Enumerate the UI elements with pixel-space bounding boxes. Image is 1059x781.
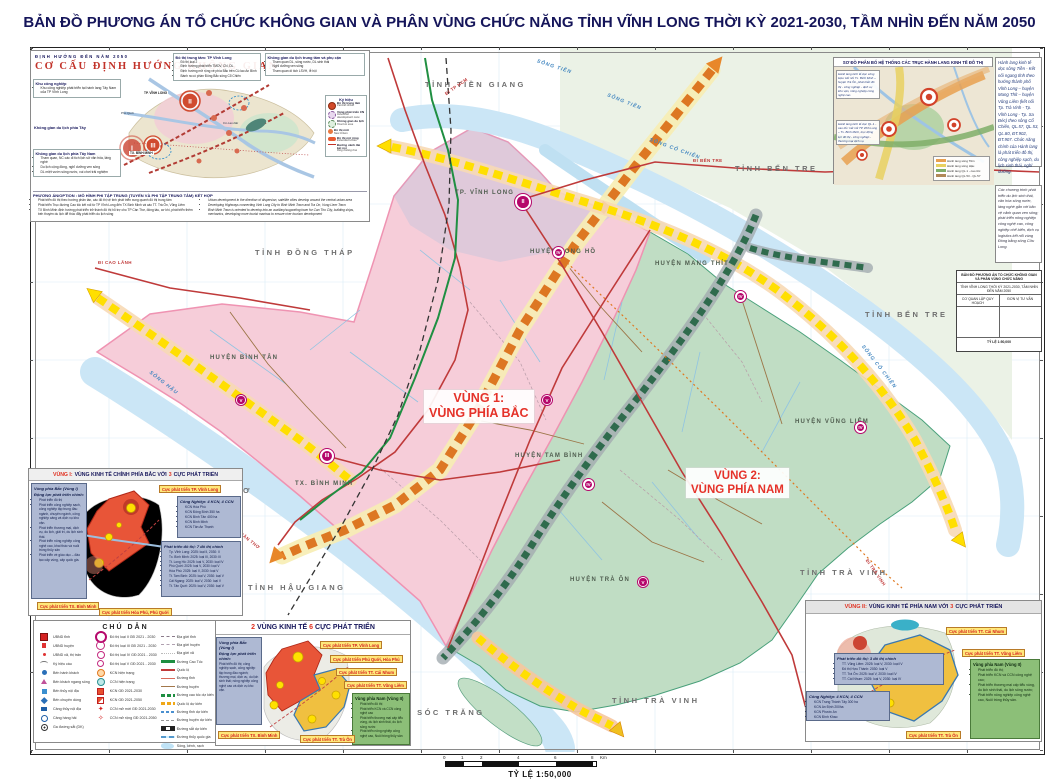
bullet: Binh Minh Town is oriented to develop in…	[208, 208, 367, 217]
legend-symbol-icon	[37, 706, 51, 713]
corridor-note-2: Hành lang kinh tế dọc QL.1 - cao tốc: kế…	[836, 120, 880, 145]
legend-symbol-icon	[94, 715, 108, 722]
legend-item: Địa giới huyện	[161, 641, 214, 648]
legend-item: CCN hiện trạng	[94, 678, 157, 685]
legend-item: Quốc lộ	[161, 667, 214, 674]
legend-item: Đường tỉnh	[161, 675, 214, 682]
scale-label: TỶ LỆ 1:50,000	[440, 770, 640, 779]
legend-item: UBND tỉnh	[37, 633, 90, 640]
two-region-left-box: Vùng phía Bắc (Vùng I) Động lực phát tri…	[216, 637, 262, 725]
region2-inset: VÙNG II: VÙNG KINH TẾ PHÍA NAM VỚI 3 CỰC…	[805, 600, 1042, 742]
title-block-agency: CƠ QUAN LẬP QUY HOẠCH	[957, 295, 1000, 306]
legend-symbol-icon	[161, 650, 175, 657]
bullet: Phát triển đô thị theo hướng phân tán, c…	[38, 198, 197, 202]
ring-link-note: Đường vành đai kết nốiRing linking line	[328, 144, 365, 153]
corridor-inset: SƠ ĐỒ PHÂN BỐ HỆ THỐNG CÁC TRỤC HÀNH LAN…	[833, 57, 993, 184]
title-block-line2: TỈNH VĨNH LONG THỜI KỲ 2021-2030, TẦM NH…	[957, 283, 1041, 295]
chip-tp-vinh-long: Cực phát triển TP. Vĩnh Long	[320, 641, 382, 649]
scale-ticks: 0 1 2 4 6 8 Km	[440, 755, 640, 761]
bullet: Nghỉ dưỡng ven sông	[273, 64, 363, 68]
bullet: KCN Tân An Thạnh	[185, 525, 238, 529]
south-bullets: Phát triển đô thịPhát triển KCN và CCN c…	[355, 702, 407, 738]
legend-symbol-icon	[94, 642, 108, 649]
district-label-binh-tan: HUYỆN BÌNH TÂN	[210, 355, 278, 361]
ky-hieu-item: Không gian du lịchTourism area	[328, 120, 365, 128]
bullet: TX Bình Minh định hướng phát triển trở t…	[38, 208, 197, 217]
legend-item: KCN hiện trạng	[94, 669, 157, 676]
legend-symbol-icon	[94, 633, 108, 640]
legend-item: Đường huyện	[161, 683, 214, 690]
legend-box: CHÚ DẪN UBND tỉnhUBND huyệnUBND xã, thị …	[33, 620, 218, 743]
legend-symbol-icon	[161, 709, 175, 716]
bullet: KCN Phước An	[814, 710, 887, 714]
corridor-legend-item: Hành lang QL.1 - cao tốc	[936, 169, 988, 173]
region1-minimap	[79, 485, 169, 607]
legend-item: Bến khách ngang sông	[37, 678, 90, 685]
legend-symbol-icon	[37, 688, 51, 695]
legend-symbol-icon	[161, 725, 175, 732]
legend-symbol-icon	[94, 678, 108, 685]
bullet: Phát triển đô thị;	[978, 668, 1037, 673]
bullet: Phát triển Trục đường Cao tốc kết nối từ…	[38, 203, 197, 207]
south-bullets: Phát triển đô thị;Phát triển KCN và CCN …	[973, 668, 1037, 703]
option-section: PHƯƠNG ÁN/OPTION : MÔ HÌNH PHI TẬP TRUNG…	[33, 191, 367, 217]
program-note: Các chương trình phát triển du lịch sinh…	[995, 185, 1042, 263]
legend-symbol-icon	[94, 706, 108, 713]
chip-vung-liem: Cực phát triển TT. Vũng Liêm	[344, 681, 407, 689]
legend-item: UBND xã, thị trấn	[37, 651, 90, 658]
legend-item: Đô thị loại IV GĐ 2021 - 2030	[94, 651, 157, 658]
region1-drivers-box: Vùng phía Bắc (Vùng I) Động lực phát tri…	[31, 483, 87, 599]
bullet: Phát triển đô thị	[360, 702, 407, 706]
corridor-swatch-icon	[936, 174, 946, 177]
ky-hieu-item: Vùng phát triển CNIndustrial development…	[328, 111, 365, 120]
legend-item: KCN GĐ 2021-2030	[94, 688, 157, 695]
corridor-swatch-icon	[936, 169, 946, 172]
legend-symbol-icon	[161, 667, 175, 674]
bullet: Tx. Bình Minh: 2025: loại III, 2030: III	[169, 555, 238, 559]
bullet: Tt. Tân Quới: 2025: loại V, 2030: loại V	[169, 584, 238, 588]
urban-marker-iv-3: IV	[854, 421, 867, 434]
bullet: DL miệt vườn sông nước, vui chơi trải ng…	[41, 170, 119, 174]
bullet: KCN Trung Thành Tây 300 ha	[814, 700, 887, 704]
chip-binh-minh: Cực phát triển TX. Bình Minh	[37, 602, 99, 610]
legend-symbol-icon	[328, 129, 333, 134]
legend-symbol-icon	[161, 683, 175, 690]
chip-cai-nhum2: Cực phát triển TT. Cái Nhum	[946, 627, 1007, 635]
minimap-numeral-iii: III	[150, 144, 155, 150]
title-block-consultant: ĐƠN VỊ TƯ VẤN	[1000, 295, 1042, 306]
legend-item: Cảng hàng hải	[37, 715, 90, 722]
bullet: Phát triển công nghiệp sạch, công nghiệp…	[39, 503, 84, 525]
road-label-ben-tre: ĐI BẾN TRE	[693, 158, 723, 163]
title-block: BẢN ĐỒ PHƯƠNG ÁN TỔ CHỨC KHÔNG GIAN VÀ P…	[956, 270, 1042, 352]
legend-symbol-icon	[161, 658, 175, 665]
ring-line-icon	[328, 144, 336, 145]
bullet: Phát triển thương mại cấp tiểu vùng, du …	[978, 683, 1037, 692]
option-vn-bullets: Phát triển đô thị theo hướng phân tán, c…	[33, 198, 197, 217]
legend-symbol-icon	[94, 669, 108, 676]
legend-symbol-icon	[37, 660, 51, 667]
corridor-legend-item: Hành lang QL.53 - QL.57	[936, 174, 988, 178]
legend-symbol-icon	[161, 692, 175, 699]
region2-inset-title: VÙNG II: VÙNG KINH TẾ PHÍA NAM VỚI 3 CỰC…	[806, 601, 1041, 614]
legend-symbol-icon	[161, 742, 175, 749]
option-en-bullets: Urban development in the direction of di…	[203, 198, 367, 217]
ky-hieu-legend: Ký hiệu Đô thị trung tâmCentral Urban Vù…	[325, 95, 367, 157]
urban-marker-iv-1: IV	[552, 246, 565, 259]
legend-item: Đường sắt dự kiến	[161, 725, 214, 732]
bullet: KCN Bình Tân 400 ha	[185, 515, 238, 519]
urban-marker-iii: III	[319, 448, 335, 464]
urban-marker-v-2: V	[235, 394, 247, 406]
legend-symbol-icon	[37, 651, 51, 658]
bullet: KCN Đình Khao	[814, 715, 887, 719]
bullet: Hòa Phú: 2025: loại V, 2030: loại V	[169, 569, 238, 573]
bullet: Phát triển đô thị	[39, 498, 84, 502]
legend-item: Đô thị loại II GĐ 2021 - 2030	[94, 633, 157, 640]
chip-hoa-phu: Cực phát triển Hòa Phú, Phú Quới	[99, 608, 172, 616]
urban-marker-v-1: V	[541, 394, 553, 406]
corridor-legend-item: Hành lang sông Tiền	[936, 159, 988, 163]
title-block-scale: TỶ LỆ 1:50,000	[957, 338, 1041, 345]
chip-binh-minh2: Cực phát triển TX. Bình Minh	[218, 731, 280, 739]
map-sheet: BẢN ĐỒ PHƯƠNG ÁN TỔ CHỨC KHÔNG GIAN VÀ P…	[0, 0, 1059, 781]
bullet: Đô thị Hựu Thành: 2030: loại V	[842, 667, 941, 671]
section-bullets: Tham quan DL, sông nước, DL sinh tháiNgh…	[268, 60, 363, 74]
district-label-binh-minh: TX. BÌNH MINH	[295, 481, 353, 487]
urban-marker-ii: II	[514, 193, 532, 211]
bullet: TT. Trà Ôn: 2025: loại V, 2030: loại IV	[842, 672, 941, 676]
section-bullets: Đô thị loại 2Định hướng phát triển TMDV,…	[176, 60, 259, 79]
bullet: Phát triển KCN và CCN công nghệ cao;	[978, 673, 1037, 682]
bullet: Phát triển nông nghiệp công nghệ cao, Nu…	[978, 693, 1037, 702]
legend-symbol-icon	[37, 669, 51, 676]
bullet: Tham quan di tích LSVH, lễ hội	[273, 69, 363, 73]
song-tien-corridor-note: Hành lang kinh tế dọc sông Tiền - Kết nố…	[995, 57, 1042, 167]
legend-item: Đô thị loại V GĐ 2021 - 2030	[94, 660, 157, 667]
legend-symbol-icon	[161, 633, 175, 640]
province-label-tra-vinh-2: TỈNH TRÀ VINH	[612, 696, 700, 705]
legend-symbol-icon	[328, 102, 336, 110]
legend-item: Sông, kênh, rạch	[161, 742, 214, 749]
chip-tra-on: Cực phát triển TT. Trà Ôn	[906, 731, 961, 739]
bullet: Tham quan DL, sông nước, DL sinh thái	[273, 60, 363, 64]
region-2-label: VÙNG 2: VÙNG PHÍA NAM	[686, 468, 789, 498]
bullet: Đô thị loại 2	[181, 60, 259, 64]
legend-item: Ga đường sắt (DK)	[37, 724, 90, 731]
industry-bullets: KCN Hòa PhúKCN Đông Bình 350 haKCN Bình …	[180, 505, 238, 529]
district-label-tam-binh: HUYỆN TAM BÌNH	[515, 453, 583, 459]
legend-item: Đường tỉnh dự kiến	[161, 709, 214, 716]
legend-symbol-icon	[37, 633, 51, 640]
region2-urban-box: Phát triển đô thị: 3 đô thị chính TT. Vũ…	[834, 653, 944, 685]
minimap-label-phu-quoi: Phú Quới	[121, 111, 134, 115]
chip-phu-quoi: Cực phát triển Phú Quới, Hòa Phú	[330, 655, 403, 663]
title-block-line1: BẢN ĐỒ PHƯƠNG ÁN TỔ CHỨC KHÔNG GIAN VÀ P…	[957, 271, 1041, 283]
two-region-title: 2 VÙNG KINH TẾ 6 CỰC PHÁT TRIỂN	[216, 621, 410, 635]
legend-symbol-icon	[37, 715, 51, 722]
bullet: Phát triển nông nghiệp công nghệ cao, kh…	[39, 539, 84, 552]
region1-inset: VÙNG I: VÙNG KINH TẾ CHÍNH PHÍA BẮC VỚI …	[28, 468, 243, 616]
region1-inset-title: VÙNG I: VÙNG KINH TẾ CHÍNH PHÍA BẮC VỚI …	[29, 469, 242, 481]
legend-symbol-icon	[94, 697, 108, 704]
legend-item: Quốc lộ dự kiến	[161, 700, 214, 707]
center-urban-box: Đô thị trung tâm: TP Vĩnh Long Đô thị lo…	[173, 53, 261, 81]
industry-bullets: KCN Trung Thành Tây 300 haKCN An Định 20…	[809, 700, 887, 719]
legend-symbol-icon	[161, 717, 175, 724]
bullet: Bành ra có phần Đông Bắc sông Cổ Chiên	[181, 74, 259, 78]
section-du-lich-tay: Không gian du lịch phía Tây	[34, 125, 86, 130]
region1-industry-box: Công Nghiệp: 4 KCN, 4 CCN KCN Hòa PhúKCN…	[177, 496, 241, 538]
bullet: Developing Highways connecting Vinh Long…	[208, 203, 367, 207]
bullet: KCN Đông Bình 350 ha	[185, 510, 238, 514]
two-region-inset: 2 VÙNG KINH TẾ 6 CỰC PHÁT TRIỂN Vùng phí…	[215, 620, 411, 746]
bullet: TT. Cái Nhum: 2025: loại V, 2030: loại I…	[842, 677, 941, 681]
corridor-legend-item: Hành lang sông Hậu	[936, 164, 988, 168]
ky-hieu-items: Đô thị trung tâmCentral Urban Vùng phát …	[328, 102, 365, 143]
corridor-note-1: Hành lang kinh tế dọc sông Hậu: kết nối …	[836, 70, 880, 99]
legend-item: Đường thủy quốc gia	[161, 734, 214, 741]
district-label-mang-thit: HUYỆN MANG THÍT	[655, 261, 729, 267]
legend-symbol-icon	[94, 660, 108, 667]
legend-symbol-icon	[94, 651, 108, 658]
bullet: TT. Vũng Liêm: 2025: loại V; 2030: loại …	[842, 662, 941, 666]
two-region-south-box: Vùng phía Nam (Vùng II) Phát triển đô th…	[352, 693, 410, 745]
road-label-cao-lanh: ĐI CAO LÃNH	[98, 260, 132, 265]
legend-symbol-icon	[161, 641, 175, 648]
bullet: Phát triển KCN và CCN công nghệ cao	[360, 707, 407, 716]
bullet: Định hướng mở rộng về phía Bắc trên Cù l…	[181, 69, 259, 73]
bullet: Urban development in the direction of di…	[208, 198, 367, 202]
chip-vinh-long: Cực phát triển TP. Vĩnh Long	[159, 485, 221, 493]
orientation-inset: ĐỊNH HƯỚNG ĐẾN NĂM 2050 CƠ CẤU ĐỊNH HƯỚN…	[30, 50, 370, 222]
legend-item: Đường Cao Tốc	[161, 658, 214, 665]
province-label-hau-giang: TỈNH HẬU GIANG	[248, 583, 346, 592]
title-block-empty-right	[1000, 307, 1042, 337]
legend-column-3: Địa giới tỉnhĐịa giới huyệnĐịa giới xãĐư…	[161, 633, 214, 750]
legend-item: UBND huyện	[37, 642, 90, 649]
bullet: Định hướng phát triển TMDV, CN, DL	[181, 64, 259, 68]
legend-symbol-icon	[37, 724, 51, 731]
scale-bar: 0 1 2 4 6 8 Km TỶ LỆ 1:50,000	[440, 755, 640, 779]
legend-item: Địa giới xã	[161, 650, 214, 657]
bullet: Phát triển về giáo dục – đào tạo cấp vùn…	[39, 553, 84, 562]
legend-item: Cảng thủy nội địa	[37, 706, 90, 713]
legend-column-2: Đô thị loại II GĐ 2021 - 2030Đô thị loại…	[94, 633, 157, 750]
region2-industry-box: Công Nghiệp: 4 KCN, 4 CCN KCN Trung Thàn…	[806, 691, 890, 721]
legend-title: CHÚ DẪN	[34, 624, 217, 631]
bullet: Tp. Vĩnh Long: 2025: loại II, 2030: II	[169, 550, 238, 554]
region1-urban-box: Phát triển đô thị: 7 đô thị chính Tp. Vĩ…	[161, 541, 241, 597]
legend-symbol-icon	[161, 700, 175, 707]
bullet: Du lịch cộng đồng, nghỉ dưỡng ven sông	[41, 165, 119, 169]
district-label-vinh-long: TP. VĨNH LONG	[455, 190, 514, 196]
legend-symbol-icon	[37, 642, 51, 649]
tourism-center-box: Không gian du lịch trung tâm và phụ cận …	[265, 53, 365, 76]
orientation-header: ĐỊNH HƯỚNG ĐẾN NĂM 2050	[35, 54, 128, 59]
orientation-minimap: I II III	[119, 73, 319, 185]
driver-bullets: Phát triển đô thịPhát triển công nghiệp …	[34, 498, 84, 562]
page-title: BẢN ĐỒ PHƯƠNG ÁN TỔ CHỨC KHÔNG GIAN VÀ P…	[0, 14, 1059, 31]
bullet: KCN Bình Minh	[185, 520, 238, 524]
legend-symbol-icon	[161, 675, 175, 682]
section-bullets: Tham quan, NC các di tích lịch sử văn hó…	[36, 156, 119, 175]
legend-symbol-icon	[37, 678, 51, 685]
legend-item: Bến hành khách	[37, 669, 90, 676]
legend-symbol-icon	[94, 688, 108, 695]
title-block-empty-left	[957, 307, 1000, 337]
chip-tra-on2: Cực phát triển TT. Trà Ôn	[300, 735, 355, 743]
section-du-lich-tay-nam: Không gian du lịch phía Tây Nam Tham qua…	[33, 149, 121, 177]
legend-symbol-icon	[328, 120, 336, 128]
province-label-tien-giang: TỈNH TIỀN GIANG	[425, 80, 526, 89]
ky-hieu-item: Đô thị trung tâmCentral Urban	[328, 102, 365, 110]
district-label-tra-on: HUYỆN TRÀ ÔN	[570, 577, 630, 583]
legend-item: CCN mở mới GĐ 2021-2030	[94, 706, 157, 713]
province-label-ben-tre-2: TỈNH BẾN TRE	[865, 310, 948, 319]
chip-cai-nhum: Cực phát triển TT. Cái Nhum	[336, 668, 397, 676]
legend-symbol-icon	[161, 734, 175, 741]
urban-marker-v-3: V	[637, 576, 649, 588]
legend-item: Đô thị loại III GĐ 2021 - 2030	[94, 642, 157, 649]
legend-item: Bến thủy nội địa	[37, 688, 90, 695]
legend-column-1: UBND tỉnhUBND huyệnUBND xã, thị trấnKý h…	[37, 633, 90, 750]
bullet: Tt. Tam Bình: 2025: loại V, 2030: loại V	[169, 574, 238, 578]
bullet: KCN An Định 200ha	[814, 705, 887, 709]
bullet: Khu công nghiệp phát triển tại hành lang…	[41, 86, 119, 95]
province-label-dong-thap: TỈNH ĐỒNG THÁP	[255, 248, 355, 257]
minimap-label-cu-lao-dai: Cù Lao Dài	[223, 121, 238, 125]
legend-symbol-icon	[328, 137, 336, 141]
legend-item: Đường huyện dự kiến	[161, 717, 214, 724]
legend-item: CCN mở rộng GĐ 2021-2050	[94, 715, 157, 722]
legend-item: Ký hiệu cầu	[37, 660, 90, 667]
minimap-label-vinh-long: TP. VĨNH LONG	[143, 91, 168, 95]
section-bullets: Khu công nghiệp phát triển tại hành lang…	[36, 86, 119, 95]
legend-item: Địa giới tỉnh	[161, 633, 214, 640]
bullet: Phát triển thương mại cấp tiểu vùng, du …	[360, 716, 407, 729]
bullet: Cái Ngang: 2025: loại V, 2030: loại V	[169, 579, 238, 583]
legend-item: KCN GĐ 2021-2050	[94, 697, 157, 704]
province-label-ben-tre-1: TỈNH BẾN TRE	[735, 164, 818, 173]
bullet: Phát triển thương mại, dịch vụ, du lịch,…	[39, 526, 84, 539]
legend-item: Bến chuyên dùng	[37, 697, 90, 704]
urban-bullets: Tp. Vĩnh Long: 2025: loại II, 2030: IITx…	[164, 550, 238, 588]
bullet: Tt. Long Hồ: 2025: loại V, 2030: loại IV	[169, 560, 238, 564]
two-region-minimap	[260, 637, 356, 745]
legend-symbol-icon	[37, 697, 51, 704]
bullet: Phú Quới: 2025: loại V, 2030: loại V	[169, 564, 238, 568]
bullet: Phát triển nông nghiệp công nghệ cao, Nu…	[360, 729, 407, 738]
bullet: KCN Hòa Phú	[185, 505, 238, 509]
urban-bullets: TT. Vũng Liêm: 2025: loại V; 2030: loại …	[837, 662, 941, 681]
minimap-numeral-ii: II	[188, 99, 192, 106]
chip-vung-liem2: Cực phát triển TT. Vũng Liêm	[962, 649, 1025, 657]
legend-item: Đường cao tốc dự kiến	[161, 692, 214, 699]
corridor-swatch-icon	[936, 159, 946, 162]
legend-symbol-icon	[328, 111, 336, 119]
corridor-legend: Hành lang sông Tiền Hành lang sông Hậu H…	[933, 156, 990, 181]
minimap-label-binh-minh: TX. BÌNH MINH	[129, 151, 154, 155]
region-1-label: VÙNG 1: VÙNG PHÍA BẮC	[424, 390, 534, 423]
corridor-swatch-icon	[936, 164, 946, 167]
scale-bar-segments	[445, 761, 597, 767]
bullet: Tham quan, NC các di tích lịch sử văn hó…	[41, 156, 119, 165]
region2-south-box: Vùng phía Nam (Vùng II) Phát triển đô th…	[970, 659, 1040, 739]
urban-marker-iv-2: IV	[734, 290, 747, 303]
section-khu-cong-nghiep: Khu công nghiệp Khu công nghiệp phát tri…	[33, 79, 121, 98]
corridor-inset-title: SƠ ĐỒ PHÂN BỐ HỆ THỐNG CÁC TRỤC HÀNH LAN…	[834, 58, 992, 67]
urban-marker-iv-4: IV	[582, 478, 595, 491]
